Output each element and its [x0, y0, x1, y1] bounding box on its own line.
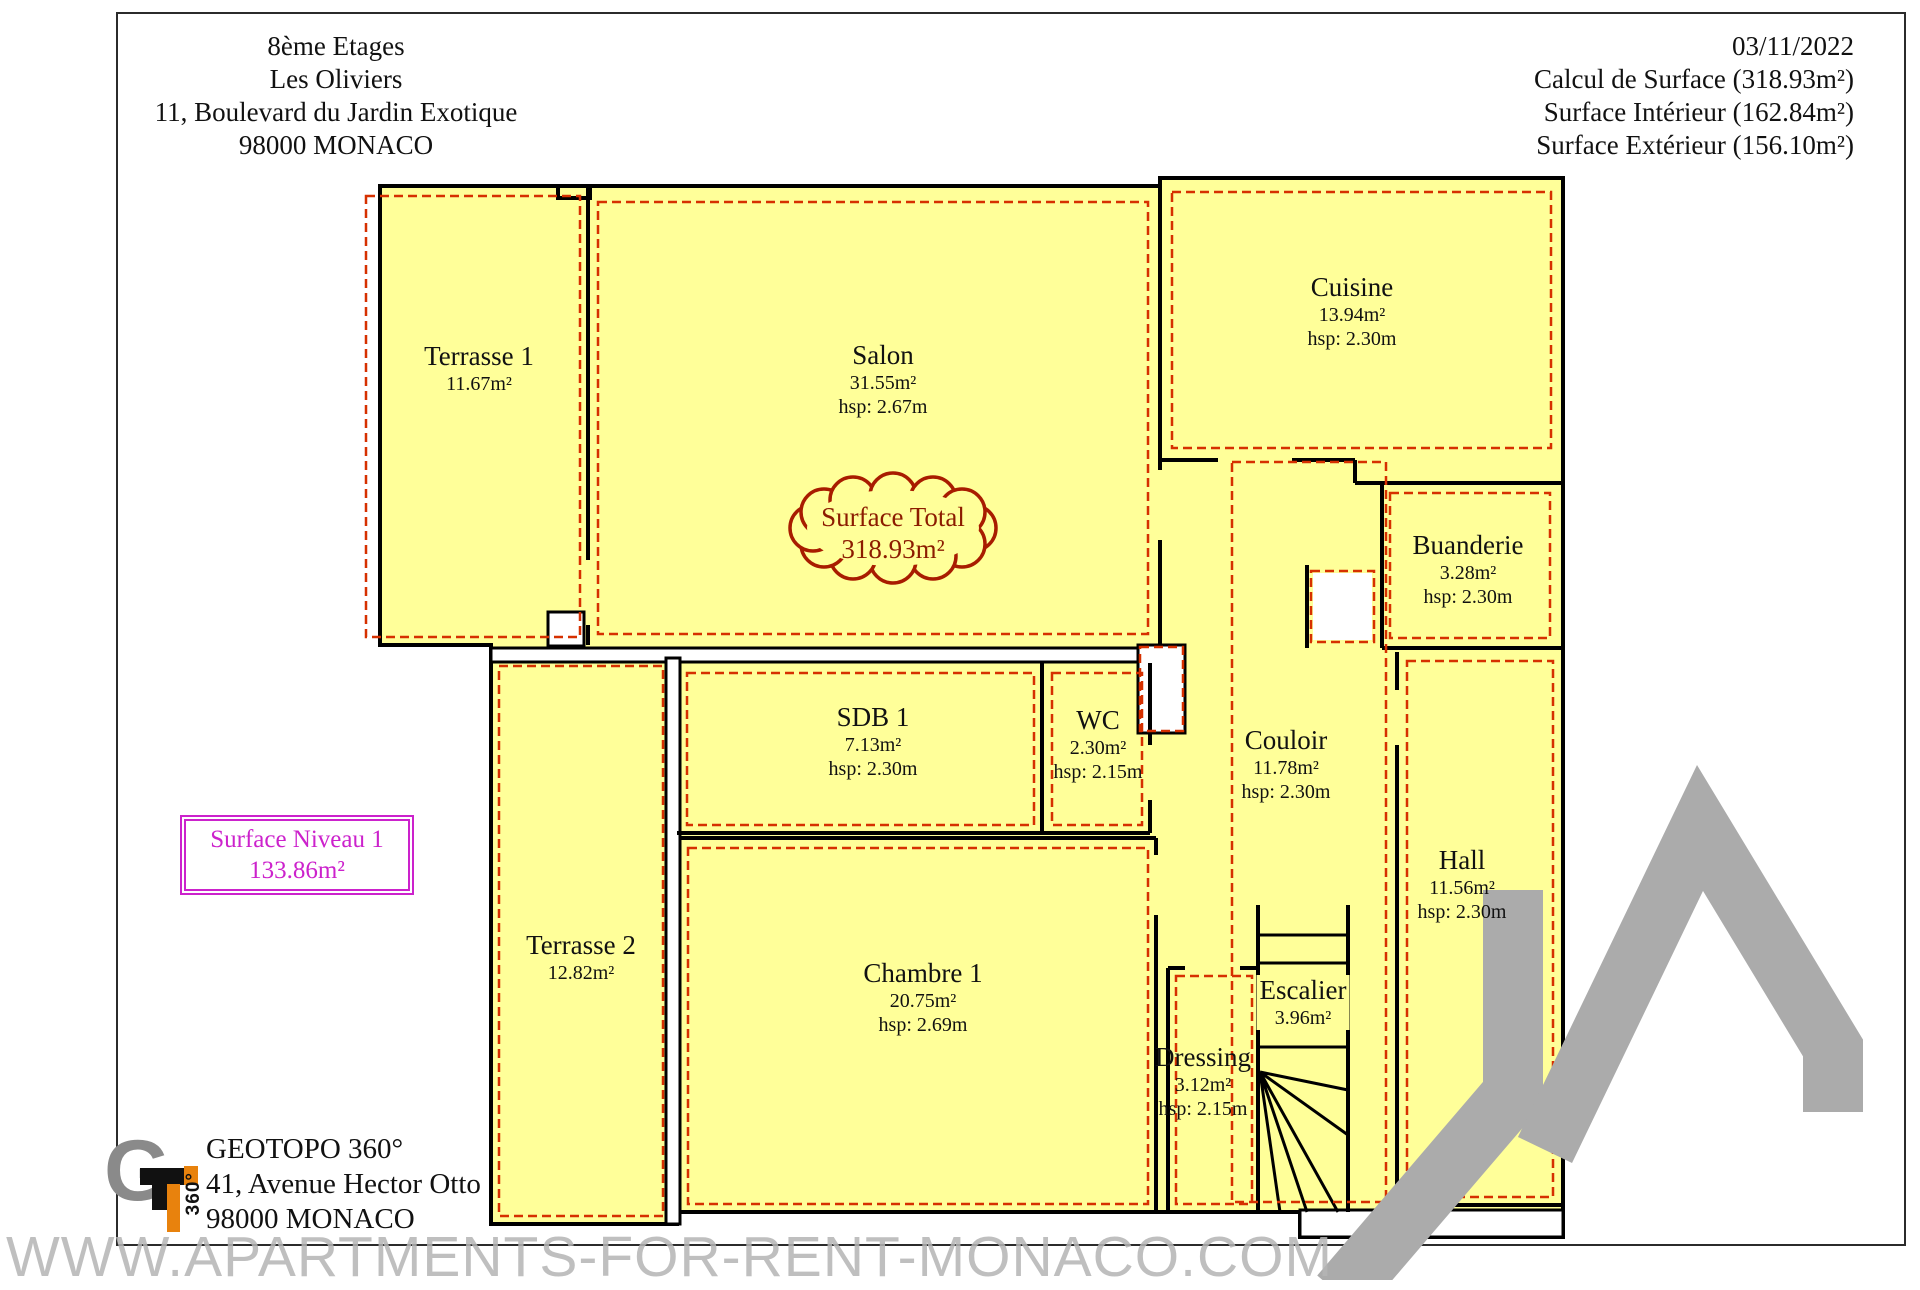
- house-wall-stroke: [1340, 890, 1513, 1280]
- header-surface-exterior: Surface Extérieur (156.10m²): [1534, 129, 1854, 162]
- room-label-couloir: Couloir 11.78m² hsp: 2.30m: [1242, 725, 1331, 804]
- header-surface-interior: Surface Intérieur (162.84m²): [1534, 96, 1854, 129]
- header-date: 03/11/2022: [1534, 30, 1854, 63]
- geotopo-name: GEOTOPO 360°: [206, 1132, 481, 1167]
- header-surface-total: Calcul de Surface (318.93m²): [1534, 63, 1854, 96]
- room-label-hall: Hall 11.56m² hsp: 2.30m: [1418, 845, 1507, 924]
- room-label-cuisine: Cuisine 13.94m² hsp: 2.30m: [1308, 272, 1397, 351]
- geotopo-logo-orange-stem: [167, 1184, 180, 1232]
- header-floor: 8ème Etages: [155, 30, 518, 63]
- room-label-chambre-1: Chambre 1 20.75m² hsp: 2.69m: [863, 958, 982, 1037]
- header-surfaces: 03/11/2022 Calcul de Surface (318.93m²) …: [1534, 30, 1854, 162]
- room-label-dressing: Dressing 3.12m² hsp: 2.15m: [1155, 1042, 1251, 1121]
- geotopo-address-block: GEOTOPO 360° 41, Avenue Hector Otto 9800…: [206, 1132, 481, 1237]
- surface-niveau-label: Surface Niveau 1: [186, 824, 408, 855]
- geotopo-street: 41, Avenue Hector Otto: [206, 1167, 481, 1202]
- header-residence: Les Oliviers: [155, 63, 518, 96]
- surface-niveau-box: Surface Niveau 1 133.86m²: [180, 815, 414, 895]
- header-street: 11, Boulevard du Jardin Exotique: [155, 96, 518, 129]
- surface-total-label: Surface Total 318.93m²: [821, 501, 965, 565]
- house-roof-stroke: [1545, 828, 1833, 1150]
- room-label-salon: Salon 31.55m² hsp: 2.67m: [839, 340, 928, 419]
- geotopo-logo-360: 360°: [183, 1172, 205, 1215]
- header-city: 98000 MONACO: [155, 129, 518, 162]
- room-label-wc: WC 2.30m² hsp: 2.15m: [1054, 705, 1143, 784]
- room-label-terrasse-1: Terrasse 1 11.67m²: [424, 341, 534, 396]
- room-label-escalier: Escalier 3.96m²: [1257, 975, 1350, 1030]
- surface-niveau-value: 133.86m²: [186, 855, 408, 886]
- house-watermark: [0, 0, 1920, 1280]
- room-label-sdb1: SDB 1 7.13m² hsp: 2.30m: [829, 702, 918, 781]
- geotopo-city: 98000 MONACO: [206, 1202, 481, 1237]
- header-address: 8ème Etages Les Oliviers 11, Boulevard d…: [155, 30, 518, 162]
- room-label-terrasse-2: Terrasse 2 12.82m²: [526, 930, 636, 985]
- room-label-buanderie: Buanderie 3.28m² hsp: 2.30m: [1413, 530, 1524, 609]
